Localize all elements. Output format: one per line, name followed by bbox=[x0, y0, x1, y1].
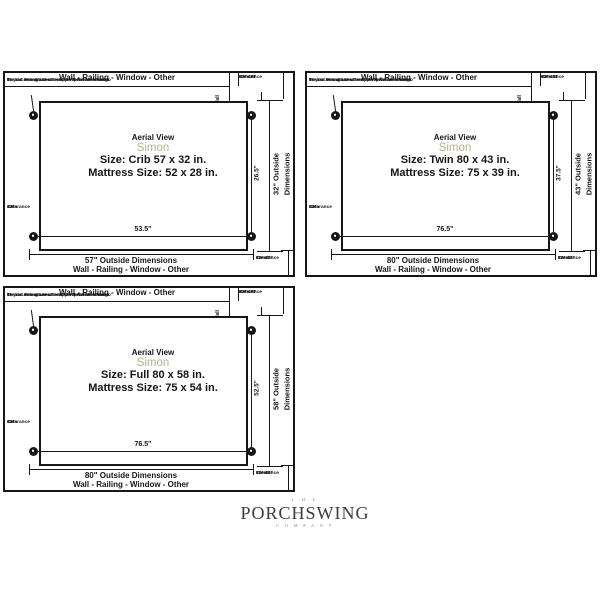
clearance-front-right-line bbox=[288, 250, 289, 275]
outside-depth-top-tick bbox=[257, 315, 283, 316]
outside-depth-bottom-tick bbox=[257, 466, 283, 467]
wall-railing-window-bottom-label: Wall - Railing - Window - Other bbox=[5, 480, 257, 489]
clearance-behind-right-line bbox=[585, 73, 586, 99]
hanging-length-line bbox=[37, 236, 249, 237]
hanging-length-label: 76.5" bbox=[395, 226, 495, 233]
diagram-panel-twin: Wall - Railing - Window - Other The circ… bbox=[305, 71, 597, 277]
note-pointer-line bbox=[31, 95, 34, 112]
outside-width-dimension-line bbox=[29, 469, 254, 470]
clearance-behind-right-line bbox=[283, 288, 284, 314]
outside-width-label: 57" Outside Dimensions bbox=[5, 256, 257, 265]
top-strip-divider-line bbox=[5, 301, 230, 302]
aerial-view-label: Aerial View bbox=[53, 133, 253, 142]
clearance-behind-right-line bbox=[283, 73, 284, 99]
mattress-size-label: Mattress Size: 52 x 28 in. bbox=[53, 167, 253, 180]
top-strip-divider-line bbox=[307, 86, 532, 87]
model-name-label: Simon bbox=[355, 142, 555, 154]
hanging-length-line bbox=[339, 236, 551, 237]
rope-attachment-circle-top-left bbox=[29, 111, 38, 120]
clearance-front-tick bbox=[281, 250, 295, 251]
clearance-front-right-line bbox=[288, 465, 289, 490]
outside-depth-label-line2: Dimensions bbox=[585, 153, 594, 196]
clearance-front-right-line bbox=[590, 250, 591, 275]
outside-depth-label-line2: Dimensions bbox=[283, 153, 292, 196]
outside-width-dimension-line bbox=[29, 254, 254, 255]
outside-width-label: 80" Outside Dimensions bbox=[307, 256, 559, 265]
clearance-behind-word2: Behind bbox=[239, 75, 255, 81]
clearance-side-word2: Side bbox=[7, 420, 17, 426]
clearance-front-tick bbox=[583, 250, 597, 251]
outside-depth-label-line1: 32" Outside bbox=[272, 153, 281, 195]
note-pointer-line bbox=[31, 310, 34, 327]
model-name-label: Simon bbox=[53, 142, 253, 154]
note-pointer-line bbox=[333, 95, 336, 112]
note-line-3: on your ceiling and into support beam wi… bbox=[7, 78, 110, 83]
wall-railing-window-bottom-label: Wall - Railing - Window - Other bbox=[5, 265, 257, 274]
outside-depth-label-line2: Dimensions bbox=[283, 368, 292, 411]
aerial-view-label: Aerial View bbox=[53, 348, 253, 357]
diagram-panel-crib: Wall - Railing - Window - Other The circ… bbox=[3, 71, 295, 277]
outside-depth-dimension-line bbox=[269, 315, 270, 467]
rope-attachment-circle-top-left bbox=[331, 111, 340, 120]
hanging-width-label: 52.5" bbox=[254, 380, 261, 396]
size-label: Size: Full 80 x 58 in. bbox=[53, 369, 253, 382]
top-strip-divider-line bbox=[5, 86, 230, 87]
model-name-label: Simon bbox=[53, 357, 253, 369]
outside-width-dimension-line bbox=[331, 254, 556, 255]
size-label: Size: Twin 80 x 43 in. bbox=[355, 154, 555, 167]
outside-depth-dimension-line bbox=[571, 100, 572, 252]
porch-swing-bed-dimension-sheet: Wall - Railing - Window - Other The circ… bbox=[0, 0, 600, 600]
bed-center-text: Aerial View Simon Size: Crib 57 x 32 in.… bbox=[53, 133, 253, 180]
outside-depth-top-tick bbox=[559, 100, 585, 101]
note-line-3: on your ceiling and into support beam wi… bbox=[7, 293, 110, 298]
aerial-view-label: Aerial View bbox=[355, 133, 555, 142]
bed-center-text: Aerial View Simon Size: Full 80 x 58 in.… bbox=[53, 348, 253, 395]
hanging-length-label: 53.5" bbox=[93, 226, 193, 233]
outside-depth-label-line1: 58" Outside bbox=[272, 368, 281, 410]
outside-depth-dimension-line bbox=[269, 100, 270, 252]
logo-wordmark: PORCHSWING bbox=[230, 504, 380, 524]
outside-depth-bottom-tick bbox=[559, 251, 585, 252]
porchswing-company-logo: T H E PORCHSWING C O M P A N Y bbox=[230, 498, 380, 530]
clearance-front-tick bbox=[281, 465, 295, 466]
hanging-length-label: 76.5" bbox=[93, 441, 193, 448]
clearance-front-word2: Front bbox=[256, 471, 268, 477]
outside-depth-label-line1: 43" Outside bbox=[574, 153, 583, 195]
clearance-side-word2: Side bbox=[7, 205, 17, 211]
clearance-front-word2: Front bbox=[256, 256, 268, 262]
outside-depth-bottom-tick bbox=[257, 251, 283, 252]
hanging-length-line bbox=[37, 451, 249, 452]
clearance-behind-word2: Behind bbox=[541, 75, 557, 81]
outside-width-label: 80" Outside Dimensions bbox=[5, 471, 257, 480]
bed-center-text: Aerial View Simon Size: Twin 80 x 43 in.… bbox=[355, 133, 555, 180]
mattress-size-label: Mattress Size: 75 x 39 in. bbox=[355, 167, 555, 180]
logo-company-text: C O M P A N Y bbox=[249, 524, 362, 529]
wall-railing-window-bottom-label: Wall - Railing - Window - Other bbox=[307, 265, 559, 274]
size-label: Size: Crib 57 x 32 in. bbox=[53, 154, 253, 167]
clearance-front-word2: Front bbox=[558, 256, 570, 262]
hanging-width-label: 37.5" bbox=[556, 165, 563, 181]
note-line-3: on your ceiling and into support beam wi… bbox=[309, 78, 412, 83]
clearance-behind-word2: Behind bbox=[239, 290, 255, 296]
diagram-panel-full: Wall - Railing - Window - Other The circ… bbox=[3, 286, 295, 492]
rope-attachment-circle-top-left bbox=[29, 326, 38, 335]
mattress-size-label: Mattress Size: 75 x 54 in. bbox=[53, 382, 253, 395]
logo-the-text: T H E bbox=[245, 498, 365, 503]
outside-depth-top-tick bbox=[257, 100, 283, 101]
hanging-width-label: 26.5" bbox=[254, 165, 261, 181]
clearance-side-word2: Side bbox=[309, 205, 319, 211]
